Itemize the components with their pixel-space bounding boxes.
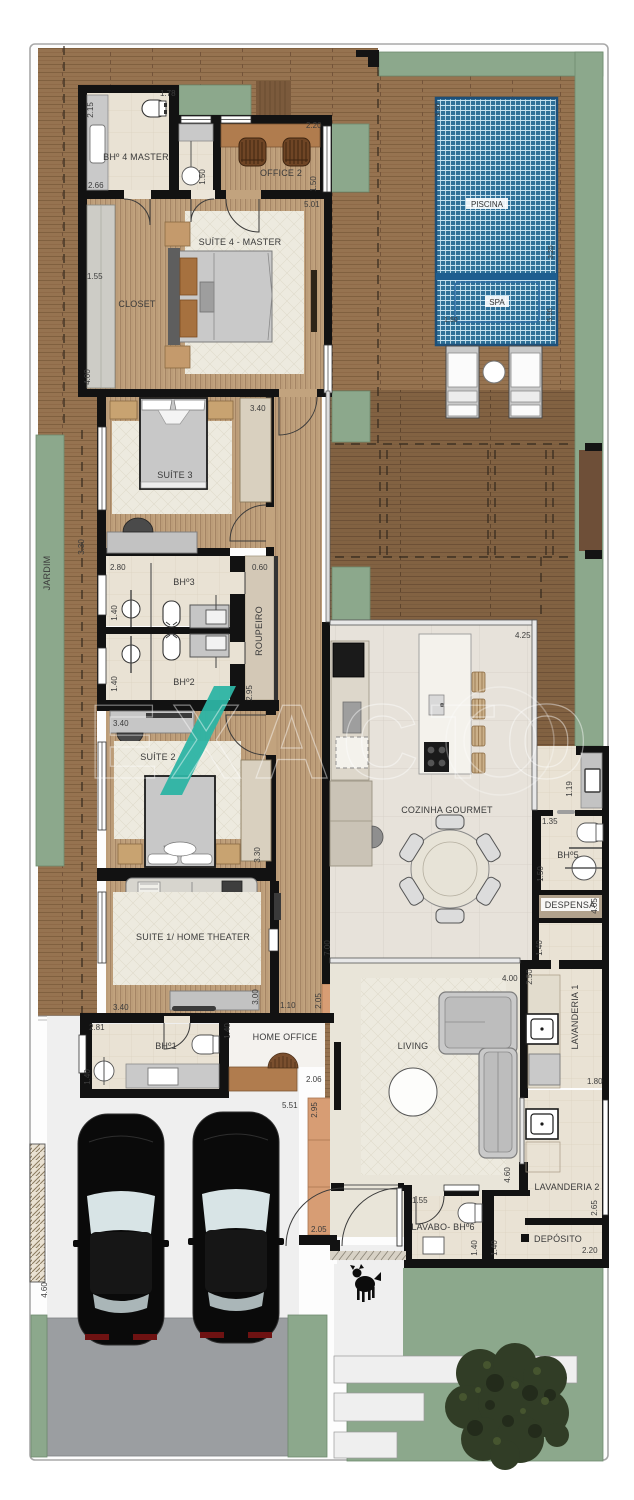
svg-text:3.30: 3.30	[253, 847, 262, 863]
svg-text:1.40: 1.40	[110, 676, 119, 692]
svg-text:SUITE 1/ HOME THEATER: SUITE 1/ HOME THEATER	[136, 932, 250, 942]
svg-text:LAVANDERIA 2: LAVANDERIA 2	[534, 1182, 599, 1192]
svg-text:2.65: 2.65	[590, 1200, 599, 1216]
svg-text:3.00: 3.00	[251, 989, 260, 1005]
svg-text:SUÍTE 2: SUÍTE 2	[140, 752, 175, 762]
svg-text:1.40: 1.40	[223, 1023, 232, 1039]
svg-text:2.95: 2.95	[245, 685, 254, 701]
svg-text:2.05: 2.05	[314, 993, 323, 1009]
svg-text:COZINHA GOURMET: COZINHA GOURMET	[401, 805, 493, 815]
svg-text:0.60: 0.60	[252, 563, 268, 572]
svg-text:3.30: 3.30	[77, 539, 86, 555]
svg-text:3.40: 3.40	[113, 1003, 129, 1012]
svg-text:1.50: 1.50	[309, 176, 318, 192]
svg-text:3.40: 3.40	[113, 719, 129, 728]
svg-text:1.10: 1.10	[280, 1001, 296, 1010]
svg-text:EXACTO: EXACTO	[88, 683, 600, 801]
svg-text:2.66: 2.66	[88, 181, 104, 190]
svg-text:1.78: 1.78	[160, 89, 176, 98]
svg-text:1.40: 1.40	[470, 1240, 479, 1256]
svg-text:OFFICE 2: OFFICE 2	[260, 168, 302, 178]
svg-text:JARDIM: JARDIM	[42, 556, 52, 591]
svg-text:1.40: 1.40	[535, 940, 544, 956]
svg-text:PISCINA: PISCINA	[471, 200, 504, 209]
svg-text:2.20: 2.20	[582, 1246, 598, 1255]
svg-text:BHº 4 MASTER: BHº 4 MASTER	[103, 152, 169, 162]
svg-text:4.00: 4.00	[83, 369, 92, 385]
svg-text:SUÍTE 3: SUÍTE 3	[157, 470, 192, 480]
svg-text:1.55: 1.55	[87, 272, 103, 281]
svg-text:HOME OFFICE: HOME OFFICE	[253, 1032, 318, 1042]
svg-text:2.80: 2.80	[110, 563, 126, 572]
svg-text:1.50: 1.50	[198, 169, 207, 185]
svg-text:4.25: 4.25	[515, 631, 531, 640]
svg-text:2.81: 2.81	[89, 1023, 105, 1032]
svg-text:1.40: 1.40	[83, 1069, 92, 1085]
svg-text:LIVING: LIVING	[398, 1041, 429, 1051]
svg-text:BHº3: BHº3	[173, 577, 195, 587]
svg-text:1.80: 1.80	[587, 1077, 603, 1086]
svg-text:SUÍTE 4 - MASTER: SUÍTE 4 - MASTER	[199, 237, 282, 247]
svg-text:2.95: 2.95	[310, 1102, 319, 1118]
svg-text:CLOSET: CLOSET	[118, 299, 156, 309]
svg-text:2.06: 2.06	[306, 1075, 322, 1084]
svg-text:LAVANDERIA 1: LAVANDERIA 1	[570, 984, 580, 1049]
svg-text:2.50: 2.50	[525, 969, 534, 985]
svg-text:2.15: 2.15	[86, 102, 95, 118]
svg-text:1.40: 1.40	[490, 1240, 499, 1256]
svg-text:4.00: 4.00	[502, 974, 518, 983]
svg-text:1.50: 1.50	[536, 866, 545, 882]
svg-text:DESPENSA: DESPENSA	[545, 900, 596, 910]
svg-text:2.20: 2.20	[306, 121, 322, 130]
svg-text:3.25: 3.25	[548, 245, 555, 259]
svg-text:1.55: 1.55	[412, 1196, 428, 1205]
svg-text:7.00: 7.00	[323, 940, 332, 956]
svg-text:1.19: 1.19	[565, 781, 574, 797]
svg-text:1.50: 1.50	[444, 317, 458, 324]
svg-text:4.05: 4.05	[590, 898, 599, 914]
svg-text:3.30: 3.30	[435, 103, 442, 117]
svg-text:SPA: SPA	[489, 298, 505, 307]
svg-text:BHº1: BHº1	[155, 1041, 177, 1051]
svg-text:4.60: 4.60	[40, 1282, 49, 1298]
svg-text:BHº5: BHº5	[557, 850, 579, 860]
svg-text:5.01: 5.01	[304, 200, 320, 209]
svg-text:1.40: 1.40	[110, 605, 119, 621]
svg-text:DEPÓSITO: DEPÓSITO	[534, 1234, 582, 1244]
svg-text:4.60: 4.60	[503, 1167, 512, 1183]
svg-text:BHº2: BHº2	[173, 677, 195, 687]
svg-text:3.40: 3.40	[250, 404, 266, 413]
svg-text:2.05: 2.05	[311, 1225, 327, 1234]
svg-text:5.16: 5.16	[547, 308, 554, 322]
svg-text:1.35: 1.35	[542, 817, 558, 826]
svg-text:5.51: 5.51	[282, 1101, 298, 1110]
svg-text:LAVABO- BHº6: LAVABO- BHº6	[411, 1222, 474, 1232]
svg-text:ROUPEIRO: ROUPEIRO	[254, 606, 264, 656]
